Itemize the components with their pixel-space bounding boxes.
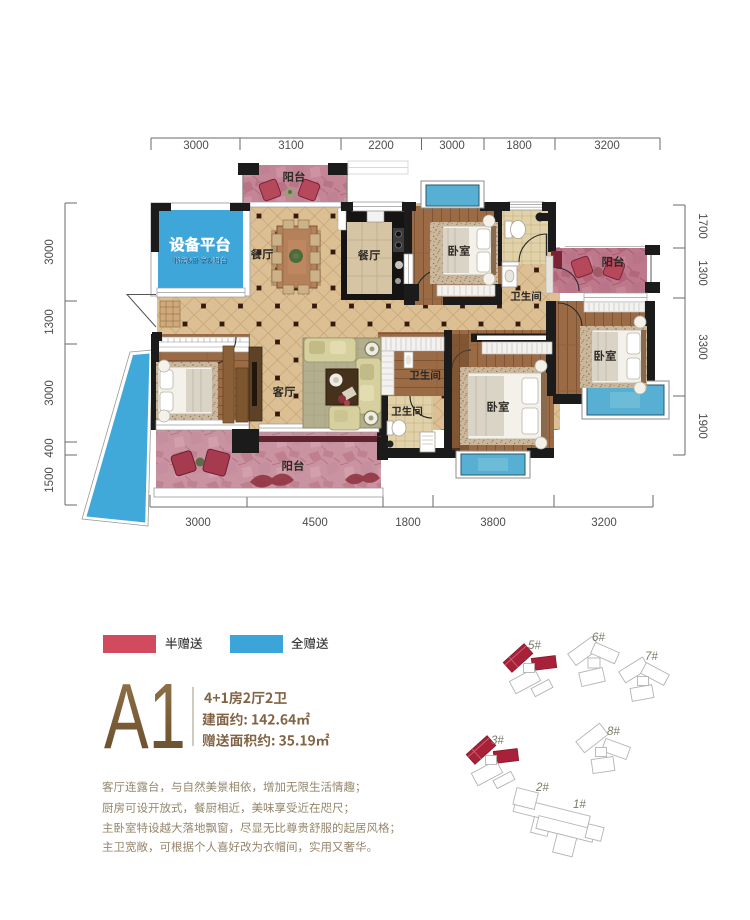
svg-text:1300: 1300 — [44, 309, 56, 335]
svg-text:400: 400 — [44, 438, 56, 457]
svg-text:1900: 1900 — [696, 413, 708, 439]
svg-text:8#: 8# — [607, 726, 620, 738]
svg-text:4500: 4500 — [302, 517, 328, 529]
svg-text:1800: 1800 — [395, 517, 421, 529]
svg-text:3800: 3800 — [480, 517, 506, 529]
svg-text:A1: A1 — [104, 665, 186, 768]
svg-text:3100: 3100 — [278, 140, 304, 152]
svg-text:1#: 1# — [573, 799, 586, 811]
svg-text:1700: 1700 — [696, 213, 708, 239]
svg-text:5#: 5# — [528, 640, 541, 652]
svg-text:3000: 3000 — [185, 517, 211, 529]
svg-text:3000: 3000 — [439, 140, 465, 152]
svg-text:6#: 6# — [592, 632, 605, 644]
svg-text:1300: 1300 — [696, 260, 708, 286]
svg-text:3200: 3200 — [594, 140, 620, 152]
svg-text:1500: 1500 — [44, 467, 56, 493]
svg-text:3000: 3000 — [44, 380, 56, 406]
svg-text:2#: 2# — [535, 782, 549, 794]
svg-text:3000: 3000 — [44, 239, 56, 265]
svg-text:3#: 3# — [491, 735, 504, 747]
svg-text:3200: 3200 — [591, 517, 617, 529]
svg-text:2200: 2200 — [368, 140, 394, 152]
svg-text:3000: 3000 — [183, 140, 209, 152]
svg-text:1800: 1800 — [506, 140, 532, 152]
svg-text:3300: 3300 — [696, 334, 708, 360]
svg-text:7#: 7# — [645, 651, 658, 663]
